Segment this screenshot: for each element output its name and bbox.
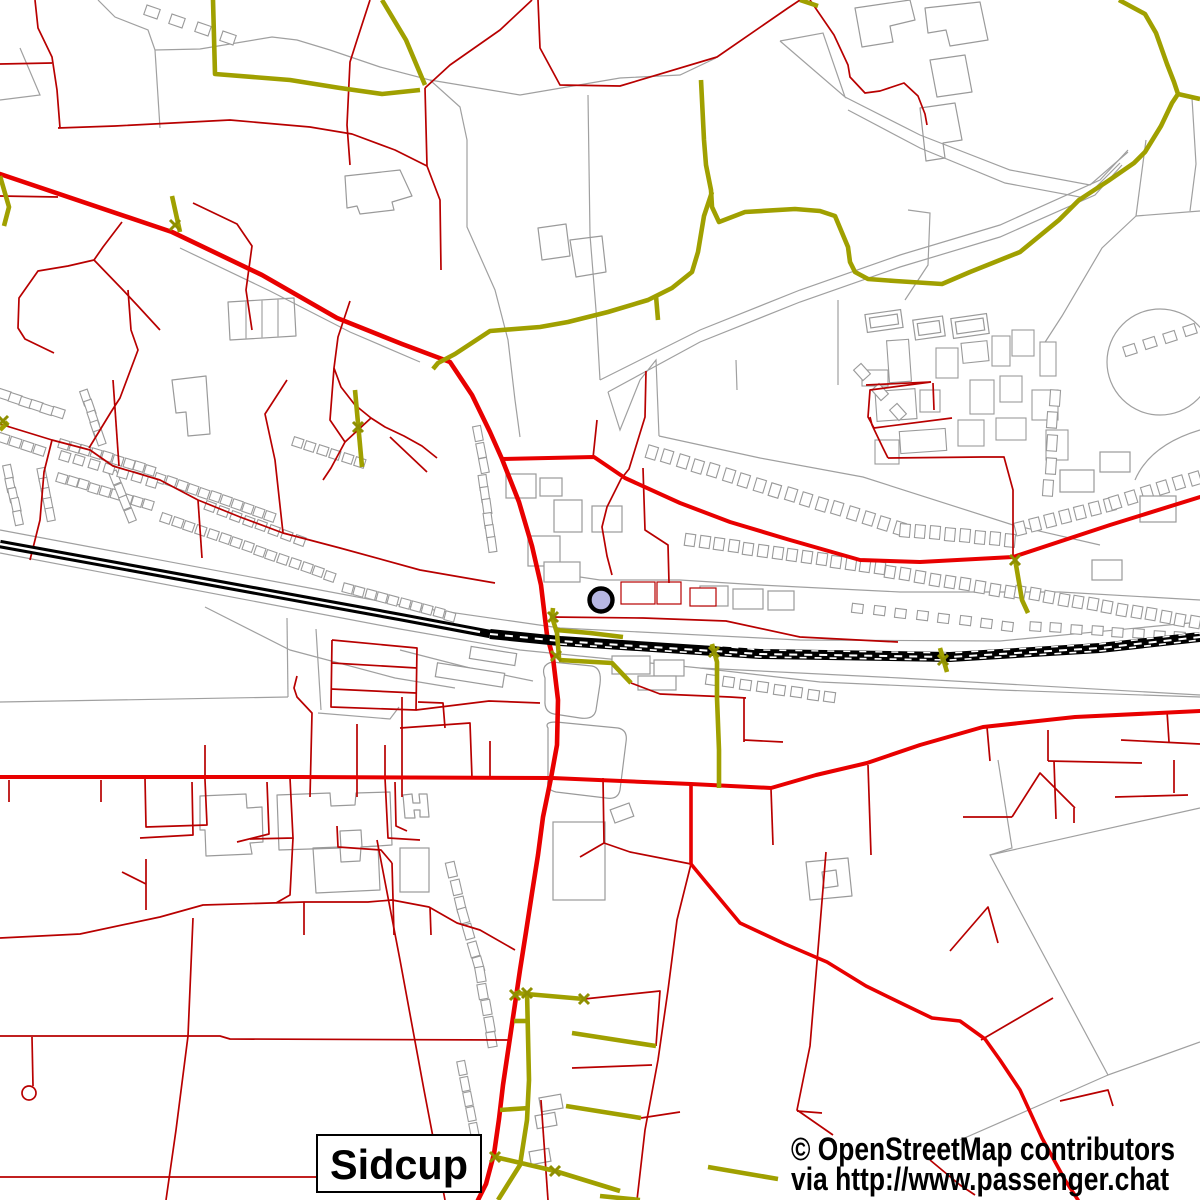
svg-text:via http://www.passenger.chat: via http://www.passenger.chat <box>791 1161 1169 1197</box>
svg-text:Sidcup: Sidcup <box>330 1141 468 1188</box>
